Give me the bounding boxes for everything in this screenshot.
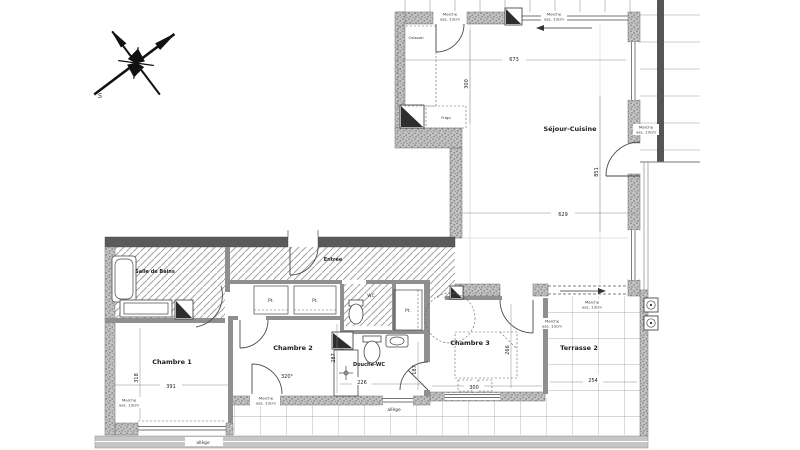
- step-label: Marche ass. 13cm: [116, 397, 142, 408]
- room-label-entree: Entrée: [324, 256, 343, 263]
- svg-text:ass. 13cm: ass. 13cm: [440, 17, 460, 22]
- sejour-terrace-door: [606, 142, 640, 176]
- dim-chambre3-width: 300: [469, 385, 479, 391]
- room-label-terrasse2: Terrasse 2: [560, 344, 598, 352]
- step-label: Marche ass. 13cm: [539, 318, 565, 329]
- step-label: Marche ass. 13cm: [541, 11, 567, 22]
- room-label-wc: WC: [367, 293, 374, 299]
- floorplan-canvas: S 673 300 851 629 391 318 287 226 187 30…: [0, 0, 800, 450]
- dim-terrasse-width: 254: [588, 378, 598, 384]
- dim-kitchen-depth: 300: [464, 79, 470, 89]
- right-window-2: [629, 230, 639, 280]
- label-frigo: Frigo: [441, 115, 451, 120]
- svg-text:ass. 13cm: ass. 13cm: [582, 305, 602, 310]
- closets: [254, 286, 422, 330]
- chain-lines: [455, 24, 628, 284]
- room-label-chambre2: Chambre 2: [273, 344, 313, 352]
- chambre3-window: [445, 393, 500, 400]
- wc-toilet: [349, 300, 363, 324]
- room-label-chambre3: Chambre 3: [450, 339, 490, 347]
- terrace-right-strip: [640, 0, 700, 290]
- sliding-openings: [536, 25, 628, 294]
- dim-sejour-width: 673: [509, 57, 519, 63]
- room-label-salle-de-bains: Salle de Bains: [135, 269, 175, 275]
- shower-tray: [334, 350, 358, 396]
- right-window-1: [629, 42, 639, 100]
- dim-chambre1-depth: 318: [134, 373, 140, 383]
- top-window: [520, 13, 628, 23]
- chambre3-door: [500, 300, 533, 333]
- label-caisson: Caisson: [408, 35, 424, 40]
- svg-text:ass. 13cm: ass. 13cm: [256, 401, 276, 406]
- terrace-railing: [657, 0, 664, 162]
- bathtub: [112, 256, 136, 302]
- svg-text:ass. 13cm: ass. 13cm: [542, 324, 562, 329]
- step-label: Marche ass. 13cm: [437, 11, 463, 22]
- room-label-douche-wc: Douche-WC: [353, 362, 385, 368]
- dim-door-angle: 320°: [281, 374, 294, 380]
- chambre2-door: [240, 320, 268, 348]
- floorplan-drawing: S 673 300 851 629 391 318 287 226 187 30…: [0, 0, 800, 450]
- douche-toilet: [363, 336, 381, 363]
- dim-chambre2-depth: 287: [331, 353, 337, 363]
- svg-text:ass. 13cm: ass. 13cm: [544, 17, 564, 22]
- dim-chambre1-width: 391: [166, 384, 176, 390]
- step-label: Marche ass. 13cm: [579, 299, 605, 310]
- step-label: Marche ass. 13cm: [633, 124, 659, 135]
- dim-chambre3-depth: 266: [505, 345, 511, 355]
- label-placard-1: Pt.: [268, 298, 274, 304]
- chambre2-french-door: [252, 364, 282, 394]
- dim-douche-width: 226: [357, 380, 367, 386]
- compass-rose: [94, 24, 174, 104]
- compass-south-label: S: [98, 92, 103, 100]
- svg-text:ass. 13cm: ass. 13cm: [119, 403, 139, 408]
- step-label: Marche ass. 13cm: [253, 395, 279, 406]
- kitchen-door: [436, 24, 464, 52]
- label-allege-1: allège: [387, 406, 401, 413]
- svg-text:ass. 13cm: ass. 13cm: [636, 130, 656, 135]
- chambre1-window: [138, 421, 226, 430]
- room-label-sejour-cuisine: Séjour-Cuisine: [543, 125, 597, 133]
- room-label-chambre1: Chambre 1: [152, 358, 192, 366]
- washbasin: [386, 335, 408, 347]
- bathroom-vanity: [120, 300, 172, 317]
- dim-sejour-south-width: 629: [558, 212, 568, 218]
- label-allege-2: allège: [196, 439, 210, 446]
- dim-sejour-length: 851: [594, 167, 600, 177]
- label-placard-3: Pt.: [405, 308, 411, 314]
- bottom-edge-band: [95, 436, 648, 448]
- label-placard-2: Pt.: [312, 298, 318, 304]
- dim-douche-depth: 187: [412, 365, 418, 375]
